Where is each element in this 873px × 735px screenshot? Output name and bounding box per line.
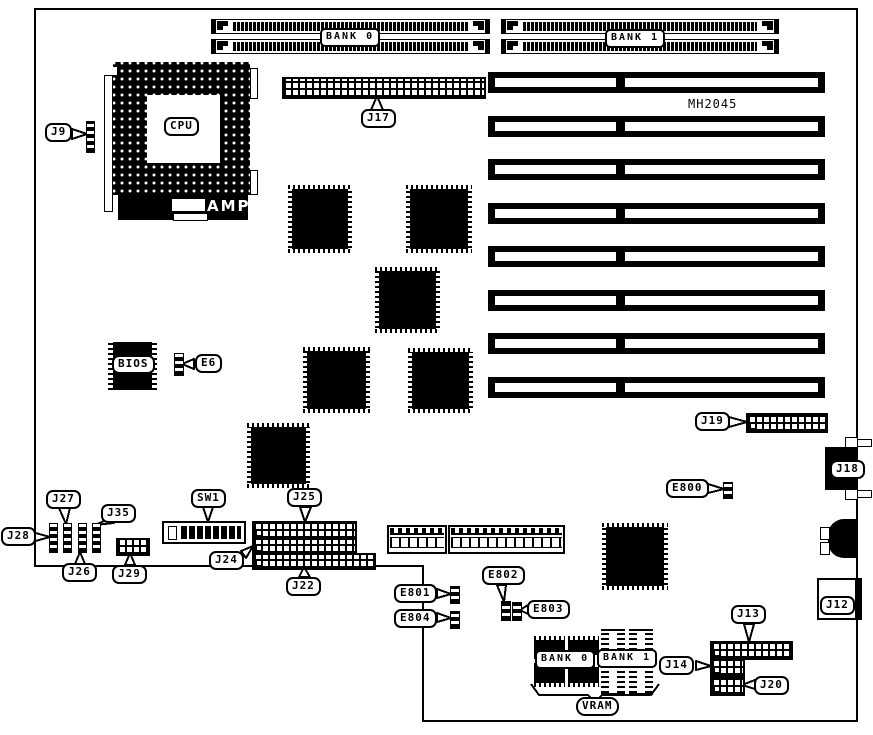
label-e801: E801	[394, 584, 437, 603]
simm-end-clip	[469, 40, 489, 53]
isa-slot-7	[488, 333, 825, 354]
label-j27: J27	[46, 490, 81, 509]
jumper-j26-block	[78, 523, 87, 553]
label-j22: J22	[286, 577, 321, 596]
motherboard-diagram: AMP J12	[0, 0, 873, 735]
label-j26: J26	[62, 563, 97, 582]
isa-slot-3	[488, 159, 825, 180]
isa-slot-2	[488, 116, 825, 137]
external-jack-connector	[828, 519, 857, 558]
qfp-chip-5	[408, 348, 473, 413]
chipset-part-number: MH2045	[688, 97, 737, 111]
label-j12: J12	[820, 596, 855, 615]
qfp-chip-1	[288, 185, 352, 253]
simm-end-clip	[758, 40, 778, 53]
label-j25: J25	[287, 488, 322, 507]
label-vram-group: VRAM	[576, 697, 619, 716]
isa-slot-8	[488, 377, 825, 398]
power-connector-2	[448, 525, 565, 554]
isa-slot-4	[488, 203, 825, 224]
label-e800: E800	[666, 479, 709, 498]
dip-switch-positions	[181, 526, 241, 539]
label-cpu: CPU	[164, 117, 199, 136]
label-j9: J9	[45, 123, 72, 142]
jumper-e801	[450, 586, 460, 604]
port-j12: J12	[817, 578, 862, 620]
simm-end-clip	[758, 20, 778, 33]
label-j20: J20	[754, 676, 789, 695]
jumper-j28-block	[49, 523, 58, 553]
label-bank0-vram: BANK 0	[535, 650, 595, 669]
simm-end-clip	[469, 20, 489, 33]
label-e802: E802	[482, 566, 525, 585]
label-e803: E803	[527, 600, 570, 619]
label-j18: J18	[830, 460, 865, 479]
label-j28: J28	[1, 527, 36, 546]
amp-socket-slot	[172, 199, 205, 211]
qfp-chip-7	[602, 523, 668, 590]
label-e6: E6	[195, 354, 222, 373]
jumper-e804	[450, 611, 460, 629]
label-j19: J19	[695, 412, 730, 431]
label-j14: J14	[659, 656, 694, 675]
cpu-socket-notch	[110, 67, 117, 75]
header-j20	[710, 677, 745, 696]
label-e804: E804	[394, 609, 437, 628]
label-bank0-simm: BANK 0	[320, 28, 380, 47]
cpu-socket-tab	[250, 170, 258, 195]
jumper-e800	[723, 482, 733, 499]
j18-mount-tab	[857, 490, 872, 498]
simm-end-clip	[502, 40, 522, 53]
label-bios: BIOS	[112, 355, 155, 374]
qfp-chip-3	[375, 267, 440, 333]
isa-slot-1	[488, 72, 825, 93]
amp-socket-slot	[173, 213, 208, 221]
label-sw1: SW1	[191, 489, 226, 508]
label-bank1-vram: BANK 1	[597, 649, 657, 668]
jumper-e802	[501, 601, 511, 621]
header-j29	[116, 538, 150, 556]
power-connector-1	[387, 525, 447, 554]
amp-brand-text: AMP	[207, 197, 251, 215]
simm-end-clip	[212, 40, 232, 53]
header-j19	[746, 413, 828, 433]
label-j13: J13	[731, 605, 766, 624]
jumper-j27-block	[63, 523, 72, 553]
j18-mount-tab	[857, 439, 872, 447]
qfp-chip-4	[303, 347, 370, 413]
isa-slot-5	[488, 246, 825, 267]
simm-end-clip	[212, 20, 232, 33]
label-j29: J29	[112, 565, 147, 584]
label-j24: J24	[209, 551, 244, 570]
label-bank1-simm: BANK 1	[605, 29, 665, 48]
header-j17	[282, 77, 486, 99]
label-j35: J35	[101, 504, 136, 523]
qfp-chip-2	[406, 185, 472, 253]
header-j14	[710, 658, 745, 677]
jack-pin	[820, 527, 830, 540]
jack-pin	[820, 542, 830, 555]
jumper-j9	[86, 121, 95, 153]
cpu-retention-bracket	[104, 75, 113, 212]
jumper-j35-block	[92, 523, 101, 553]
jumper-e6	[174, 353, 184, 376]
dip-switch-sw1	[162, 521, 246, 544]
header-j22	[252, 553, 376, 570]
cpu-socket-tab	[250, 68, 258, 99]
qfp-chip-6	[247, 423, 310, 488]
simm-end-clip	[502, 20, 522, 33]
jumper-e803	[512, 602, 522, 621]
label-j17: J17	[361, 109, 396, 128]
dip-switch-slider	[168, 526, 177, 540]
isa-slot-6	[488, 290, 825, 311]
